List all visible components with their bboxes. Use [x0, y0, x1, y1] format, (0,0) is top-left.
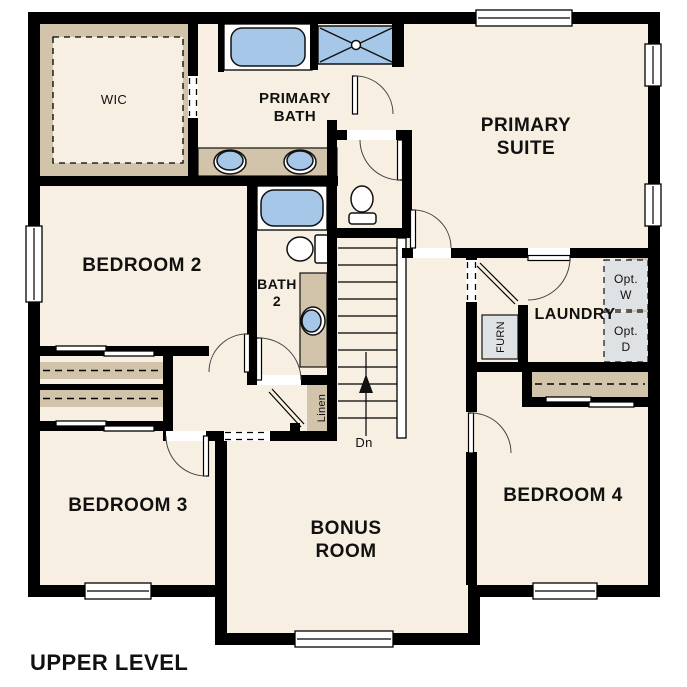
bedroom2-label: BEDROOM 2 [82, 255, 202, 276]
sliding-door-panel [104, 426, 154, 431]
closet-shelving-bed4 [532, 372, 648, 397]
primary-shower [318, 26, 394, 64]
linen-label: Linen [316, 394, 328, 422]
sliding-door-panel [104, 351, 154, 356]
stairs-down-label: Dn [355, 435, 372, 450]
sliding-door-panel [546, 397, 591, 402]
bath2-toilet [287, 235, 328, 263]
bonus-room-label-2: ROOM [315, 541, 376, 562]
floor-plan-page: WIC PRIMARY BATH PRIMARY SUITE BEDROOM 2… [0, 0, 687, 687]
bath2-label-2: 2 [273, 293, 281, 309]
bedroom3-label: BEDROOM 3 [68, 495, 188, 516]
primary-suite-label-2: SUITE [497, 138, 555, 159]
bonus-room-label-1: BONUS [310, 518, 381, 539]
wc-toilet [349, 186, 376, 224]
window-bedroom4-bottom [533, 583, 597, 599]
bedroom4-label: BEDROOM 4 [503, 485, 623, 506]
window-bedroom2-left [26, 226, 42, 302]
opt-dryer-label-1: Opt. [614, 324, 638, 338]
bath2-tub [261, 190, 323, 226]
primary-bath-label-2: BATH [274, 108, 317, 125]
floor-plan-svg: WIC PRIMARY BATH PRIMARY SUITE BEDROOM 2… [0, 0, 687, 687]
bath2-sink [301, 307, 325, 335]
bath2-label-1: BATH [257, 276, 297, 292]
laundry-label: LAUNDRY [534, 306, 615, 323]
closet-shelving-bed2 [40, 362, 163, 379]
furnace-label: FURN [495, 321, 507, 353]
opt-washer-label-2: W [620, 288, 632, 302]
plan-title: UPPER LEVEL [30, 650, 188, 675]
sliding-door-panel [589, 402, 634, 407]
window-primary-suite-top [476, 10, 572, 26]
window-primary-suite-right-2 [645, 184, 661, 226]
window-bedroom3-bottom [85, 583, 151, 599]
stair-rail [397, 238, 406, 438]
window-primary-suite-right-1 [645, 44, 661, 86]
sliding-door-panel [56, 421, 106, 426]
opt-dryer-label-2: D [622, 340, 631, 354]
primary-bath-label-1: PRIMARY [259, 90, 331, 107]
primary-suite-label-1: PRIMARY [481, 115, 571, 136]
wic-label: WIC [101, 92, 127, 107]
vanity-sink-left [214, 150, 246, 174]
opt-washer-label-1: Opt. [614, 272, 638, 286]
closet-shelving-bed3 [40, 390, 163, 407]
shower-drain [352, 41, 361, 50]
primary-tub [231, 28, 305, 66]
vanity-sink-right [284, 150, 316, 174]
window-bonus-bottom [295, 631, 393, 647]
sliding-door-panel [56, 346, 106, 351]
